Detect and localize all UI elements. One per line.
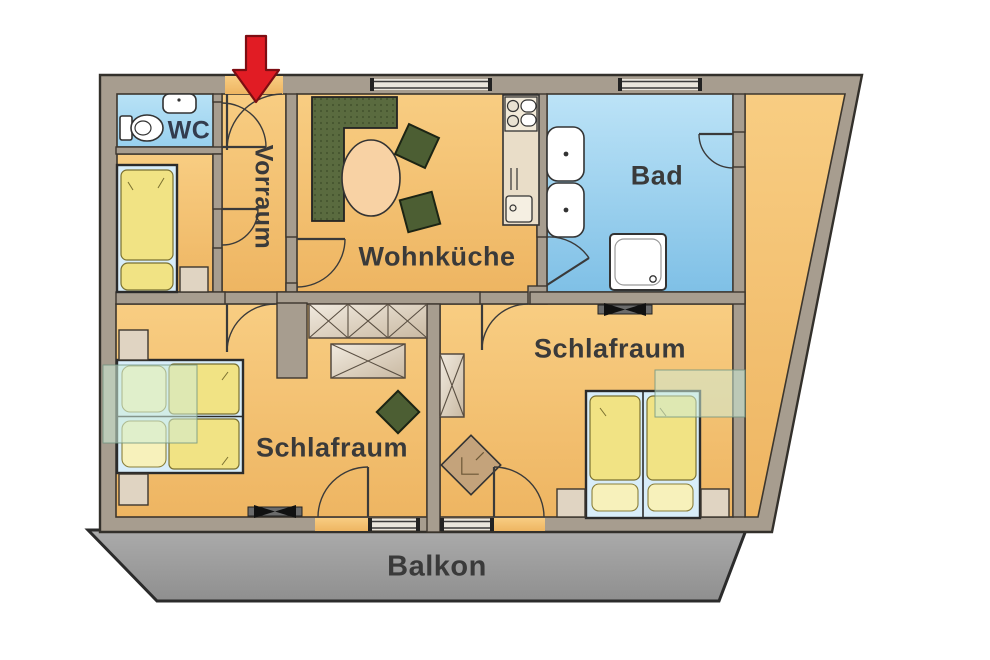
room-label-wohnkueche: Wohnküche [358, 242, 515, 273]
wardrobe-vertical [440, 354, 464, 417]
nightstand [701, 489, 729, 517]
washbasin-icon [547, 183, 584, 237]
room-label-vorraum: Vorraum [249, 145, 278, 249]
nightstand [557, 489, 585, 517]
window-bottom-left [368, 518, 420, 531]
shower-icon [610, 234, 666, 290]
floor-plan-canvas [0, 0, 990, 660]
room-label-schlafraum-right: Schlafraum [534, 334, 686, 365]
toilet-icon [120, 115, 163, 141]
room-label-schlafraum-left: Schlafraum [256, 433, 408, 464]
washbasin-icon [547, 127, 584, 181]
side-room-floor [745, 94, 845, 517]
dining-table [342, 140, 400, 216]
radiator-icon [598, 303, 652, 316]
nightstand [119, 474, 148, 505]
wc-sink-icon [163, 94, 196, 113]
window-bottom-right [440, 518, 494, 531]
radiator-icon [248, 505, 302, 518]
kitchen-unit [503, 95, 539, 225]
nightstand [180, 267, 208, 292]
room-label-balkon: Balkon [387, 551, 487, 584]
glass-overlay [655, 370, 745, 417]
wardrobe-1x [331, 344, 405, 378]
glass-overlay [103, 365, 197, 443]
window-top-kitchen [370, 78, 492, 91]
duct-pillar [277, 303, 307, 378]
chair-icon [400, 192, 440, 232]
floor-plan: WC Vorraum Wohnküche Bad Schlafraum Schl… [0, 0, 990, 660]
window-top-bad [618, 78, 702, 91]
wardrobe-3x [309, 304, 427, 338]
room-label-wc: WC [168, 117, 211, 146]
nightstand [119, 330, 148, 360]
room-label-bad: Bad [631, 161, 684, 192]
